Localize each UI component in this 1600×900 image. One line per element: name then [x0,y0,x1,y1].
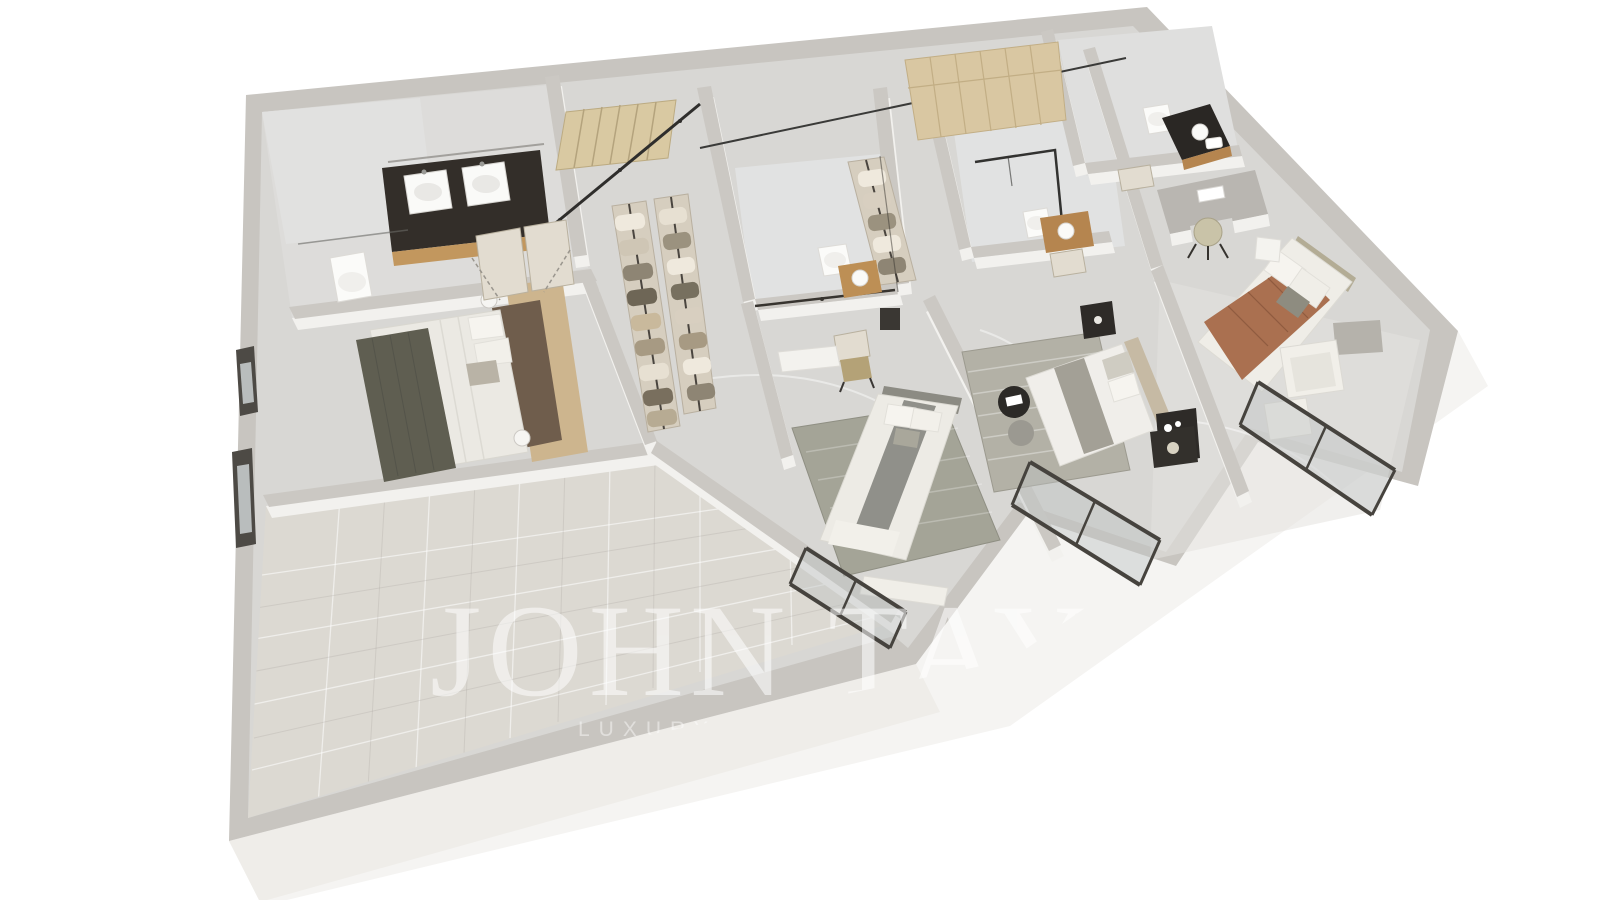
towels [1205,137,1222,149]
bedside-lamp [514,430,530,446]
nightstand-black [1080,301,1116,339]
vanity [1040,211,1094,253]
floor-plan-render: JOHN TAY LUXURY R [0,0,1600,900]
pillow [466,360,500,386]
pouf [1008,420,1034,446]
armchair [1280,340,1344,398]
side-table-dark [880,308,900,330]
vanity [838,260,882,298]
pillow [468,314,504,340]
nightstand [1255,237,1281,262]
door [1118,165,1154,191]
toilet [330,252,372,302]
side-cube [1333,320,1383,355]
door [1050,249,1086,277]
floor-plan-canvas: JOHN TAY LUXURY R [0,0,1600,900]
